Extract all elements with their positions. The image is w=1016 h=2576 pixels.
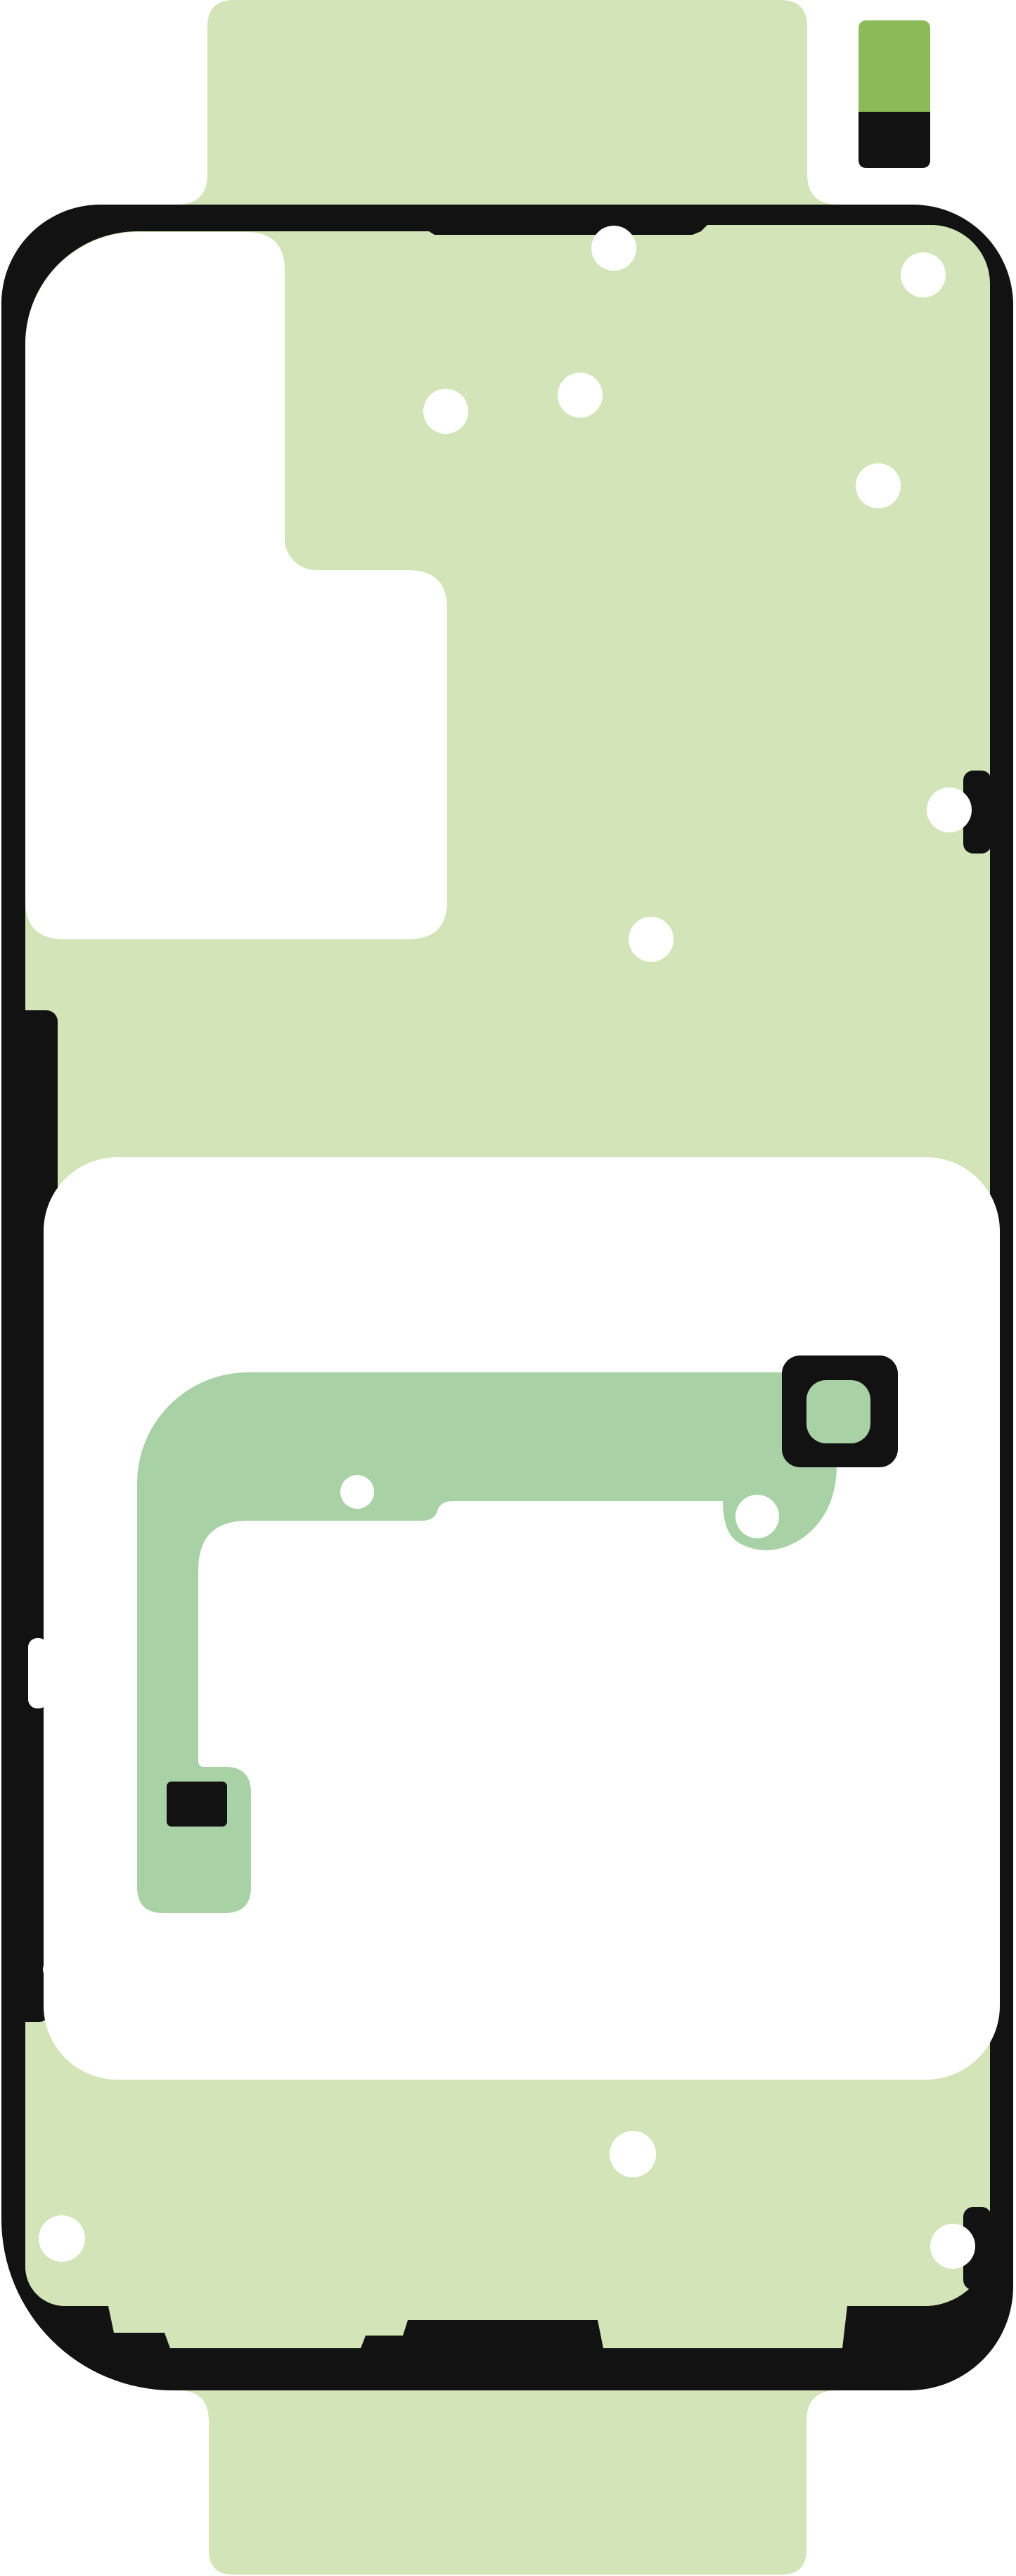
top-alignment-tab: [176, 0, 838, 205]
punch-hole: [930, 2224, 975, 2269]
punch-hole: [39, 2215, 85, 2262]
left-rail-notch: [28, 1638, 48, 1708]
pull-tab: [859, 20, 930, 168]
camera-ring-window: [806, 1380, 870, 1443]
pull-tab-black-half: [859, 112, 930, 168]
punch-hole: [927, 787, 972, 832]
product-image-samsung-back-cover-adhesive: [0, 0, 1016, 2576]
punch-hole: [558, 373, 603, 418]
pull-tab-green-half: [859, 20, 930, 112]
punch-hole: [340, 1475, 374, 1509]
punch-hole: [735, 1495, 779, 1538]
punch-hole: [901, 252, 946, 297]
punch-hole: [856, 463, 901, 508]
punch-hole: [629, 917, 674, 962]
bottom-alignment-tab: [178, 2390, 837, 2575]
punch-hole: [43, 1959, 64, 1980]
punch-hole: [610, 2131, 656, 2177]
strip-foot-pad: [167, 1782, 227, 1827]
punch-hole: [591, 226, 636, 271]
adhesive-sticker-illustration: [0, 0, 1016, 2576]
punch-hole: [423, 389, 468, 434]
